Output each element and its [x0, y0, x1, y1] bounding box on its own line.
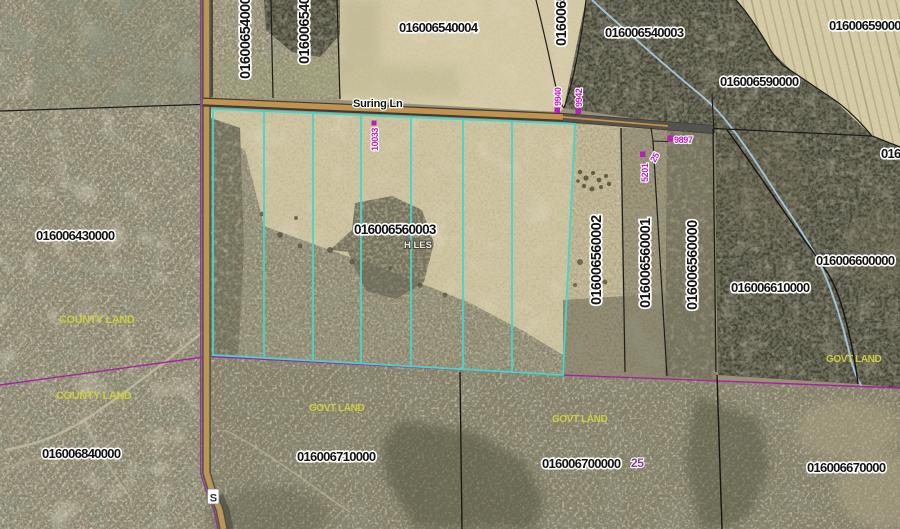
svg-text:H LES: H LES — [404, 240, 432, 251]
svg-text:016006560001: 016006560001 — [638, 218, 654, 308]
svg-text:016006540003: 016006540003 — [605, 25, 684, 40]
svg-text:016006430000: 016006430000 — [36, 228, 115, 243]
svg-text:016006600000: 016006600000 — [816, 253, 895, 268]
svg-text:016006540000: 016006540000 — [238, 0, 254, 79]
svg-text:9897: 9897 — [674, 135, 693, 145]
svg-text:9940: 9940 — [553, 87, 563, 106]
svg-text:016006540002: 016006540002 — [554, 0, 570, 46]
svg-text:Suring Ln: Suring Ln — [353, 98, 403, 110]
svg-text:COUNTY LAND: COUNTY LAND — [59, 314, 135, 326]
svg-text:016006560000: 016006560000 — [685, 220, 701, 310]
svg-text:016006540001: 016006540001 — [297, 0, 313, 64]
svg-text:016006540004: 016006540004 — [399, 20, 479, 35]
svg-text:25: 25 — [631, 456, 644, 470]
svg-text:5201: 5201 — [640, 163, 650, 182]
svg-text:GOVT LAND: GOVT LAND — [826, 354, 881, 365]
svg-text:S: S — [210, 493, 217, 505]
svg-text:016006: 016006 — [881, 146, 900, 161]
svg-text:016006670000: 016006670000 — [807, 460, 886, 475]
svg-text:016006840000: 016006840000 — [42, 446, 121, 461]
svg-text:016006610000: 016006610000 — [731, 280, 810, 295]
svg-text:016006560002: 016006560002 — [589, 215, 605, 305]
svg-text:016006710000: 016006710000 — [297, 449, 376, 464]
svg-text:016006590000: 016006590000 — [720, 74, 799, 89]
svg-text:9942: 9942 — [574, 88, 584, 107]
svg-text:016006700000: 016006700000 — [542, 456, 621, 471]
svg-text:COUNTY LAND: COUNTY LAND — [56, 390, 132, 402]
svg-text:016006560003: 016006560003 — [354, 222, 437, 237]
svg-text:GOVT LAND: GOVT LAND — [309, 403, 364, 414]
svg-text:10033: 10033 — [370, 128, 380, 151]
svg-text:GOVT LAND: GOVT LAND — [552, 414, 607, 425]
svg-text:016006590000: 016006590000 — [829, 18, 900, 33]
